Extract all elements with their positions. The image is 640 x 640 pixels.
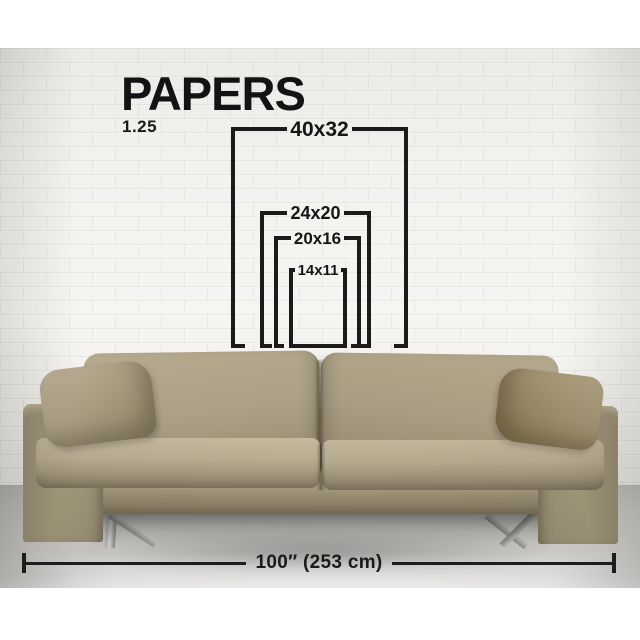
frame-edge-right (367, 213, 371, 348)
top-white-band (0, 0, 640, 48)
frame-bottom-tick-left (260, 344, 272, 348)
frame-edge-left (274, 238, 278, 348)
sofa-seat-cushion-seam (317, 444, 325, 490)
bottom-white-band (0, 588, 640, 640)
size-label-20x16: 20x16 (291, 230, 344, 247)
throw-pillow-right (493, 366, 605, 452)
frame-bottom-tick-right (351, 344, 361, 348)
measure-line-left (26, 562, 246, 565)
frame-top-edge: 40x32 (231, 127, 408, 131)
frame-bottom-tick-left (274, 344, 284, 348)
measure-endcap-right (612, 553, 616, 573)
frame-edge-right (343, 270, 347, 348)
frame-edge-left (289, 270, 293, 348)
measure-line-right (392, 562, 612, 565)
frame-edge-right (404, 129, 408, 348)
frame-top-edge: 20x16 (274, 236, 361, 240)
frame-bottom-tick-right (318, 344, 347, 348)
frame-edge-right (357, 238, 361, 348)
frame-bottom-tick-left (231, 344, 245, 348)
frame-line (352, 127, 408, 131)
frame-line (260, 211, 287, 215)
page-title: PAPERS (121, 70, 305, 117)
size-label-24x20: 24x20 (287, 204, 343, 222)
frame-bottom-tick-right (394, 344, 408, 348)
size-label-14x11: 14x11 (295, 263, 342, 278)
throw-pillow-left (38, 358, 159, 449)
frame-bottom-tick-left (289, 344, 318, 348)
aspect-ratio-label: 1.25 (122, 117, 157, 137)
size-frame-14x11: 14x11 (289, 270, 347, 348)
product-size-chart-image: PAPERS 1.25 40x32 24x20 20x16 (0, 0, 640, 640)
frame-line (231, 127, 287, 131)
measure-label: 100″ (253 cm) (246, 552, 391, 574)
sofa-under-shadow (92, 508, 548, 548)
frame-top-edge: 24x20 (260, 211, 371, 215)
frame-edge-left (260, 213, 264, 348)
frame-edge-left (231, 129, 235, 348)
frame-top-edge: 14x11 (289, 268, 347, 272)
width-measure: 100″ (253 cm) (22, 552, 616, 574)
size-label-40x32: 40x32 (287, 119, 351, 140)
